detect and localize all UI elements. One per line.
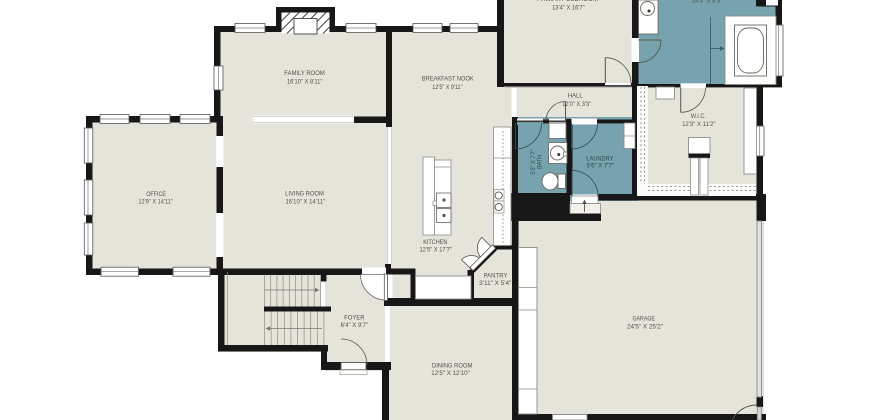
svg-text:BREAKFAST NOOK: BREAKFAST NOOK bbox=[422, 75, 474, 82]
svg-text:OFFICE: OFFICE bbox=[146, 191, 166, 198]
svg-text:LAUNDRY: LAUNDRY bbox=[586, 156, 614, 163]
svg-text:13'4" X 16'7": 13'4" X 16'7" bbox=[552, 6, 585, 12]
svg-text:W.I.C.: W.I.C. bbox=[691, 113, 706, 120]
svg-text:12'9" X 14'11": 12'9" X 14'11" bbox=[138, 200, 173, 206]
svg-text:6'4" X 9'7": 6'4" X 9'7" bbox=[341, 323, 368, 329]
svg-text:16'10" X 8'11": 16'10" X 8'11" bbox=[287, 80, 323, 86]
svg-text:5'6" X 7'7": 5'6" X 7'7" bbox=[587, 164, 615, 170]
svg-text:KITCHEN: KITCHEN bbox=[423, 239, 447, 246]
svg-text:FAMILY ROOM: FAMILY ROOM bbox=[284, 70, 325, 77]
svg-text:12'3" X 11'2": 12'3" X 11'2" bbox=[682, 122, 715, 128]
svg-text:3'11" X 5'4": 3'11" X 5'4" bbox=[479, 281, 511, 287]
svg-text:PRIMARY BEDROOM: PRIMARY BEDROOM bbox=[537, 0, 598, 3]
svg-text:24'5" X 25'2": 24'5" X 25'2" bbox=[627, 324, 663, 330]
svg-text:5'3" X 7'7": 5'3" X 7'7" bbox=[531, 149, 537, 174]
svg-text:12'0" X 3'3": 12'0" X 3'3" bbox=[562, 102, 591, 108]
svg-text:12'5" X 12'10": 12'5" X 12'10" bbox=[431, 371, 470, 377]
svg-text:12'5" X 17'7": 12'5" X 17'7" bbox=[420, 248, 452, 254]
svg-text:12'5" X 9'11": 12'5" X 9'11" bbox=[432, 85, 462, 91]
svg-text:BATH: BATH bbox=[536, 155, 543, 169]
svg-text:14'3" X 8'3": 14'3" X 8'3" bbox=[692, 0, 722, 5]
svg-text:LIVING ROOM: LIVING ROOM bbox=[285, 191, 324, 198]
svg-text:GARAGE: GARAGE bbox=[632, 315, 655, 322]
svg-text:PANTRY: PANTRY bbox=[483, 273, 508, 280]
svg-text:FOYER: FOYER bbox=[344, 315, 365, 322]
svg-text:DINING ROOM: DINING ROOM bbox=[432, 362, 472, 369]
svg-text:16'10" X 14'11": 16'10" X 14'11" bbox=[285, 199, 325, 205]
svg-text:HALL: HALL bbox=[568, 92, 583, 99]
